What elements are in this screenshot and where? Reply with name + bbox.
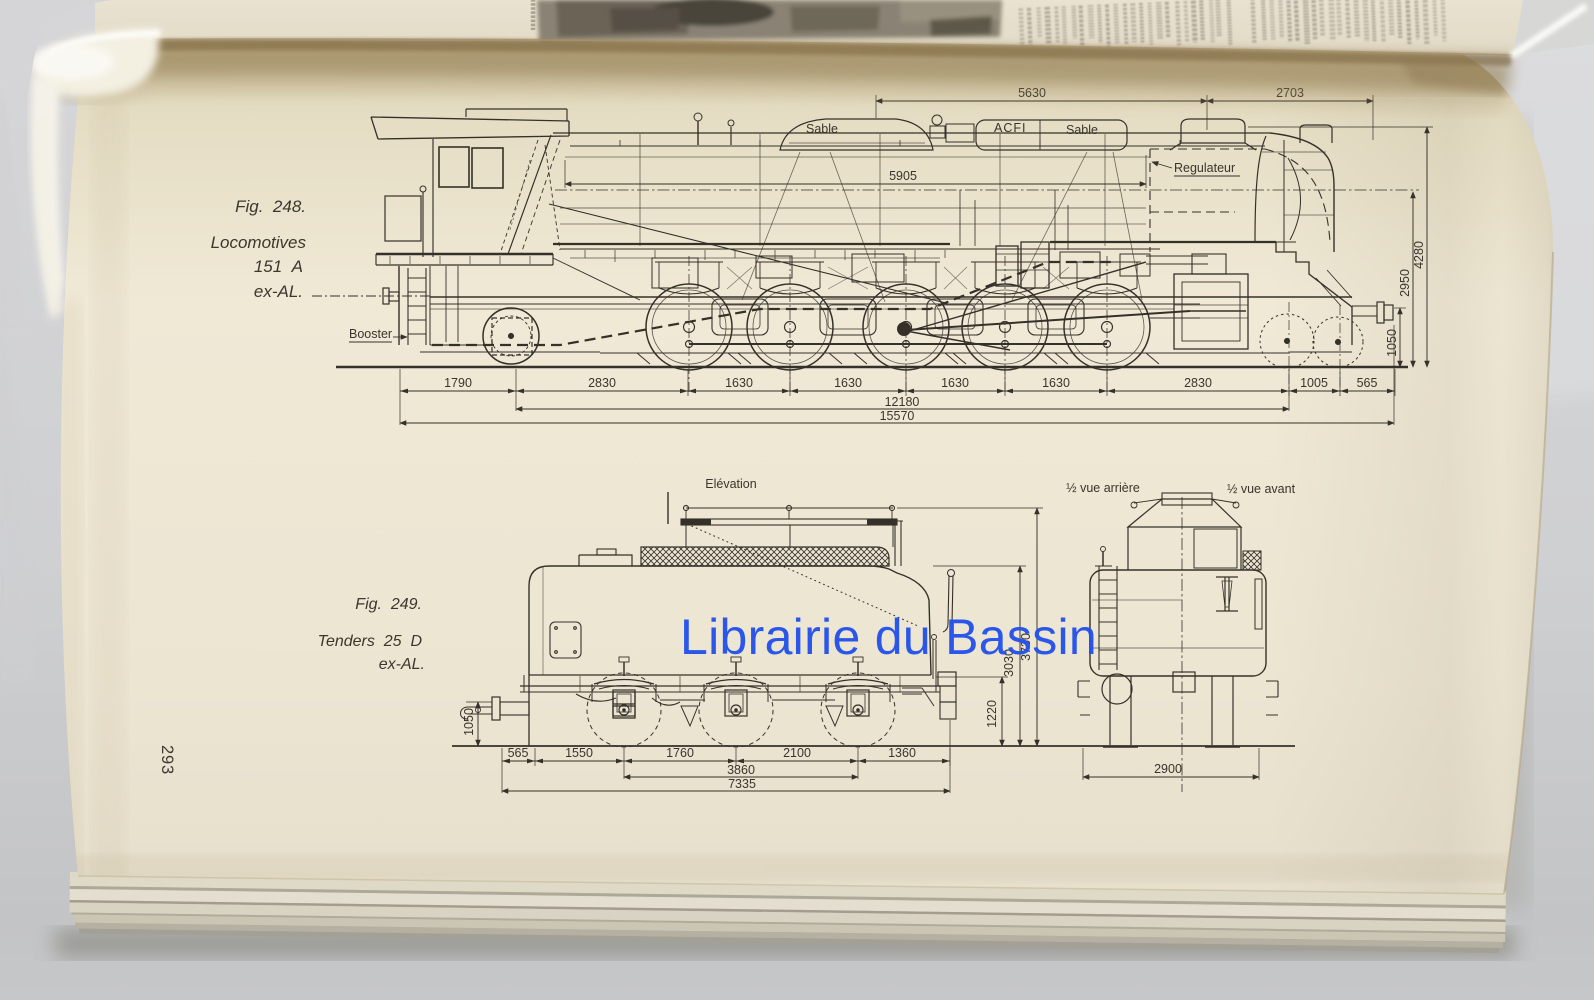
svg-text:1005: 1005: [1300, 376, 1328, 390]
svg-text:1630: 1630: [1042, 376, 1070, 390]
svg-text:Sable: Sable: [806, 122, 838, 136]
svg-text:1550: 1550: [565, 746, 593, 760]
svg-text:Regulateur: Regulateur: [1174, 161, 1235, 175]
svg-text:ACFI: ACFI: [994, 121, 1026, 135]
svg-text:Fig. 249.: Fig. 249.: [355, 596, 422, 613]
svg-text:293: 293: [158, 745, 176, 775]
svg-text:ex-AL.: ex-AL.: [379, 656, 425, 673]
svg-text:Elévation: Elévation: [705, 477, 756, 491]
svg-text:15570: 15570: [880, 409, 915, 423]
svg-text:4280: 4280: [1412, 241, 1426, 269]
svg-text:Sable: Sable: [1066, 123, 1098, 137]
svg-text:565: 565: [1357, 376, 1378, 390]
svg-text:2100: 2100: [783, 746, 811, 760]
svg-text:1630: 1630: [941, 376, 969, 390]
svg-text:1630: 1630: [725, 376, 753, 390]
svg-text:7335: 7335: [728, 777, 756, 791]
svg-text:151 A: 151 A: [254, 257, 303, 276]
svg-text:3860: 3860: [727, 763, 755, 777]
svg-text:1360: 1360: [888, 746, 916, 760]
svg-text:½ vue arrière: ½ vue arrière: [1066, 481, 1140, 495]
svg-text:2900: 2900: [1154, 762, 1182, 776]
svg-text:1790: 1790: [444, 376, 472, 390]
svg-text:1220: 1220: [985, 700, 999, 728]
svg-text:1760: 1760: [666, 746, 694, 760]
svg-text:1630: 1630: [834, 376, 862, 390]
svg-text:2830: 2830: [1184, 376, 1212, 390]
svg-text:ex-AL.: ex-AL.: [254, 282, 303, 301]
svg-text:Librairie du Bassin: Librairie du Bassin: [680, 609, 1097, 665]
svg-text:12180: 12180: [885, 395, 920, 409]
svg-text:½ vue avant: ½ vue avant: [1227, 482, 1296, 496]
svg-text:Booster: Booster: [349, 327, 392, 341]
svg-text:Fig. 248.: Fig. 248.: [235, 197, 306, 216]
svg-text:5905: 5905: [889, 169, 917, 183]
svg-text:1050: 1050: [1385, 329, 1399, 357]
svg-text:Locomotives: Locomotives: [211, 233, 307, 252]
svg-text:2830: 2830: [588, 376, 616, 390]
svg-text:2950: 2950: [1398, 269, 1412, 297]
svg-text:1050: 1050: [462, 708, 476, 736]
svg-text:Tenders 25 D: Tenders 25 D: [318, 633, 423, 650]
svg-text:565: 565: [508, 746, 529, 760]
